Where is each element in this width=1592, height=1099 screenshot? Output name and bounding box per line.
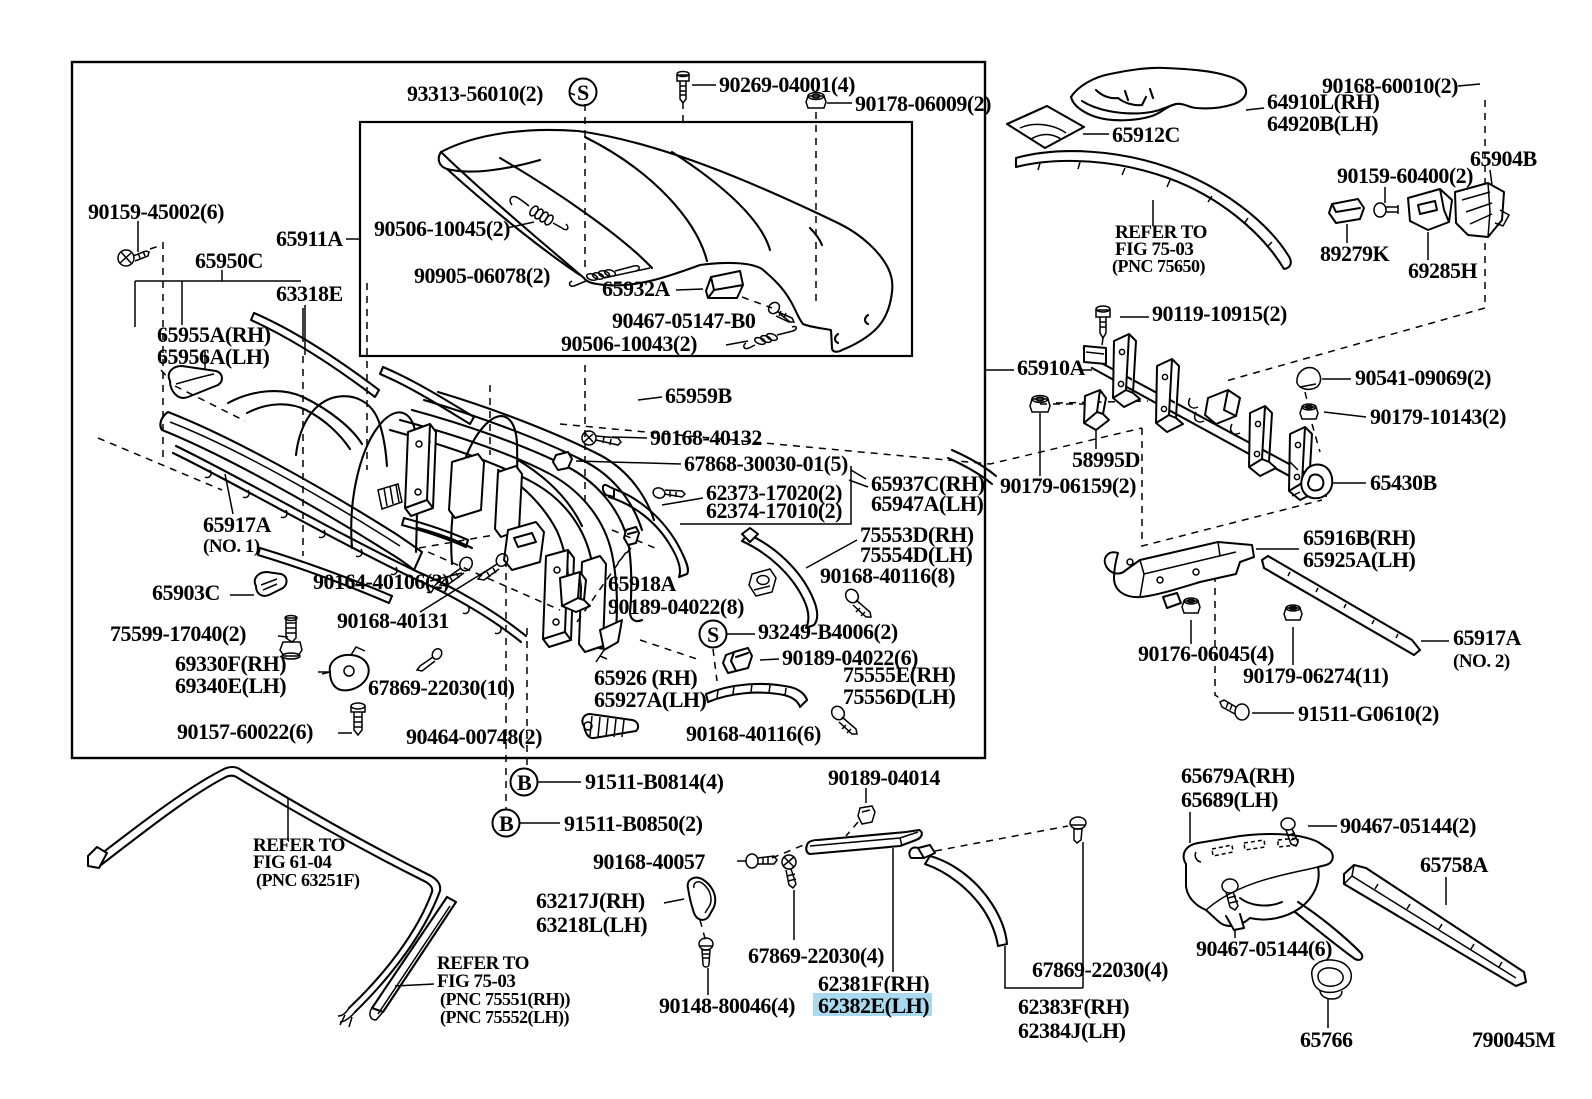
svg-text:65932A: 65932A xyxy=(602,276,671,301)
svg-text:75599-17040(2): 75599-17040(2) xyxy=(110,621,246,646)
svg-text:90179-06159(2): 90179-06159(2) xyxy=(1000,473,1136,498)
svg-text:B: B xyxy=(517,770,532,795)
svg-text:90159-45002(6): 90159-45002(6) xyxy=(88,199,224,224)
svg-text:(PNC 75650): (PNC 75650) xyxy=(1112,256,1205,277)
svg-text:65758A: 65758A xyxy=(1420,852,1489,877)
svg-text:S: S xyxy=(707,622,719,647)
svg-text:90119-10915(2): 90119-10915(2) xyxy=(1152,301,1287,326)
svg-text:65927A(LH): 65927A(LH) xyxy=(594,687,707,712)
svg-text:63218L(LH): 63218L(LH) xyxy=(536,912,647,937)
svg-text:90506-10045(2): 90506-10045(2) xyxy=(374,216,510,241)
svg-text:B: B xyxy=(499,811,514,836)
svg-text:90179-06274(11): 90179-06274(11) xyxy=(1243,663,1388,688)
svg-text:90168-40057: 90168-40057 xyxy=(593,849,705,874)
svg-text:65679A(RH): 65679A(RH) xyxy=(1181,763,1295,788)
svg-text:90168-40131: 90168-40131 xyxy=(337,608,449,633)
svg-text:75556D(LH): 75556D(LH) xyxy=(843,684,956,709)
svg-text:90464-00748(2): 90464-00748(2) xyxy=(406,724,542,749)
svg-text:(NO. 1): (NO. 1) xyxy=(203,536,260,557)
svg-text:65959B: 65959B xyxy=(665,383,733,408)
svg-text:(NO. 2): (NO. 2) xyxy=(1453,651,1510,672)
svg-text:89279K: 89279K xyxy=(1320,241,1390,266)
svg-text:67869-22030(4): 67869-22030(4) xyxy=(748,943,884,968)
svg-text:65911A: 65911A xyxy=(276,226,343,251)
svg-text:69340E(LH): 69340E(LH) xyxy=(175,673,286,698)
svg-text:91511-G0610(2): 91511-G0610(2) xyxy=(1298,701,1439,726)
svg-text:69285H: 69285H xyxy=(1408,258,1478,283)
svg-text:90168-40116(6): 90168-40116(6) xyxy=(686,721,821,746)
svg-text:63318E: 63318E xyxy=(276,281,343,306)
svg-text:93249-B4006(2): 93249-B4006(2) xyxy=(758,619,898,644)
svg-text:90905-06078(2): 90905-06078(2) xyxy=(414,263,550,288)
svg-text:90269-04001(4): 90269-04001(4) xyxy=(719,72,855,97)
svg-text:67868-30030-01(5): 67868-30030-01(5) xyxy=(684,451,848,476)
svg-text:(PNC 75552(LH)): (PNC 75552(LH)) xyxy=(440,1007,569,1028)
svg-text:90189-04014: 90189-04014 xyxy=(828,765,940,790)
svg-text:65917A: 65917A xyxy=(203,512,272,537)
svg-text:63217J(RH): 63217J(RH) xyxy=(536,888,645,913)
svg-text:90168-40132: 90168-40132 xyxy=(650,425,762,450)
svg-text:65910A: 65910A xyxy=(1017,355,1086,380)
svg-text:90168-40116(8): 90168-40116(8) xyxy=(820,563,955,588)
svg-text:65950C: 65950C xyxy=(195,248,263,273)
svg-text:65947A(LH): 65947A(LH) xyxy=(871,491,984,516)
svg-text:90159-60400(2): 90159-60400(2) xyxy=(1337,163,1473,188)
svg-text:65766: 65766 xyxy=(1300,1027,1353,1052)
svg-text:91511-B0814(4): 91511-B0814(4) xyxy=(585,769,724,794)
svg-text:90467-05144(6): 90467-05144(6) xyxy=(1196,936,1332,961)
svg-text:90179-10143(2): 90179-10143(2) xyxy=(1370,404,1506,429)
svg-text:65430B: 65430B xyxy=(1370,470,1438,495)
svg-text:62383F(RH): 62383F(RH) xyxy=(1018,994,1129,1019)
svg-text:62374-17010(2): 62374-17010(2) xyxy=(706,498,842,523)
svg-text:65917A: 65917A xyxy=(1453,625,1522,650)
svg-text:67869-22030(4): 67869-22030(4) xyxy=(1032,957,1168,982)
svg-text:90467-05144(2): 90467-05144(2) xyxy=(1340,813,1476,838)
svg-text:90541-09069(2): 90541-09069(2) xyxy=(1355,365,1491,390)
svg-text:93313-56010(2): 93313-56010(2) xyxy=(407,81,543,106)
svg-text:65903C: 65903C xyxy=(152,580,220,605)
svg-text:62384J(LH): 62384J(LH) xyxy=(1018,1018,1126,1043)
svg-text:90506-10043(2): 90506-10043(2) xyxy=(561,331,697,356)
svg-text:90178-06009(2): 90178-06009(2) xyxy=(855,91,991,116)
svg-text:90189-04022(8): 90189-04022(8) xyxy=(608,594,744,619)
svg-text:65912C: 65912C xyxy=(1112,122,1180,147)
svg-text:S: S xyxy=(577,80,589,105)
svg-text:65956A(LH): 65956A(LH) xyxy=(157,344,270,369)
svg-text:65689(LH): 65689(LH) xyxy=(1181,787,1278,812)
svg-text:90148-80046(4): 90148-80046(4) xyxy=(659,993,795,1018)
svg-text:790045M: 790045M xyxy=(1472,1027,1556,1052)
svg-text:65918A: 65918A xyxy=(608,571,677,596)
svg-text:65904B: 65904B xyxy=(1470,146,1538,171)
svg-text:90168-60010(2): 90168-60010(2) xyxy=(1322,73,1458,98)
svg-text:65925A(LH): 65925A(LH) xyxy=(1303,547,1416,572)
svg-text:(PNC 63251F): (PNC 63251F) xyxy=(256,870,360,891)
svg-text:90467-05147-B0: 90467-05147-B0 xyxy=(612,308,756,333)
svg-text:91511-B0850(2): 91511-B0850(2) xyxy=(564,811,703,836)
svg-text:62382E(LH): 62382E(LH) xyxy=(818,993,929,1018)
svg-text:90157-60022(6): 90157-60022(6) xyxy=(177,719,313,744)
svg-text:58995D: 58995D xyxy=(1072,447,1140,472)
svg-text:64920B(LH): 64920B(LH) xyxy=(1267,111,1378,136)
svg-text:67869-22030(10): 67869-22030(10) xyxy=(368,675,515,700)
